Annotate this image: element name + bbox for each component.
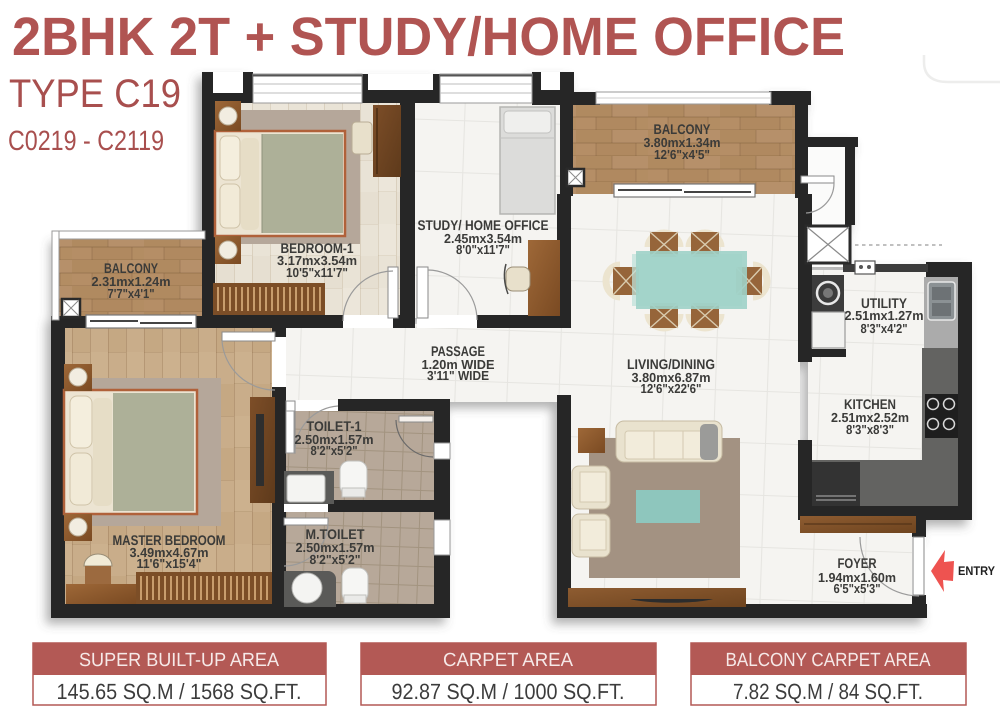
svg-text:11'6"x15'4": 11'6"x15'4" — [137, 556, 202, 571]
svg-text:TYPE C19: TYPE C19 — [9, 72, 181, 116]
svg-text:7'7"x4'1": 7'7"x4'1" — [108, 286, 155, 301]
svg-text:2BHK 2T + STUDY/HOME OFFICE: 2BHK 2T + STUDY/HOME OFFICE — [12, 7, 845, 67]
svg-text:FOYER: FOYER — [838, 555, 877, 571]
svg-text:92.87 SQ.M / 1000 SQ.FT.: 92.87 SQ.M / 1000 SQ.FT. — [392, 679, 625, 704]
svg-text:BALCONY CARPET AREA: BALCONY CARPET AREA — [726, 650, 931, 671]
svg-text:10'5"x11'7": 10'5"x11'7" — [286, 265, 348, 280]
svg-text:145.65 SQ.M / 1568 SQ.FT.: 145.65 SQ.M / 1568 SQ.FT. — [57, 679, 302, 704]
svg-text:8'0"x11'7": 8'0"x11'7" — [456, 242, 510, 257]
svg-text:6'5"x5'3": 6'5"x5'3" — [834, 581, 881, 596]
svg-text:SUPER BUILT-UP AREA: SUPER BUILT-UP AREA — [79, 650, 279, 671]
svg-text:7.82 SQ.M / 84 SQ.FT.: 7.82 SQ.M / 84 SQ.FT. — [733, 679, 923, 704]
svg-text:12'6"x4'5": 12'6"x4'5" — [654, 147, 710, 162]
svg-text:C0219 - C2119: C0219 - C2119 — [8, 125, 164, 156]
svg-text:8'3"x8'3": 8'3"x8'3" — [846, 422, 894, 437]
svg-text:12'6"x22'6": 12'6"x22'6" — [641, 381, 702, 396]
svg-text:8'2"x5'2": 8'2"x5'2" — [311, 443, 358, 458]
svg-text:8'2"x5'2": 8'2"x5'2" — [310, 552, 361, 567]
svg-text:ENTRY: ENTRY — [958, 564, 996, 578]
svg-text:CARPET AREA: CARPET AREA — [443, 650, 573, 671]
svg-text:3'11" WIDE: 3'11" WIDE — [427, 368, 489, 383]
svg-text:8'3"x4'2": 8'3"x4'2" — [861, 321, 908, 336]
